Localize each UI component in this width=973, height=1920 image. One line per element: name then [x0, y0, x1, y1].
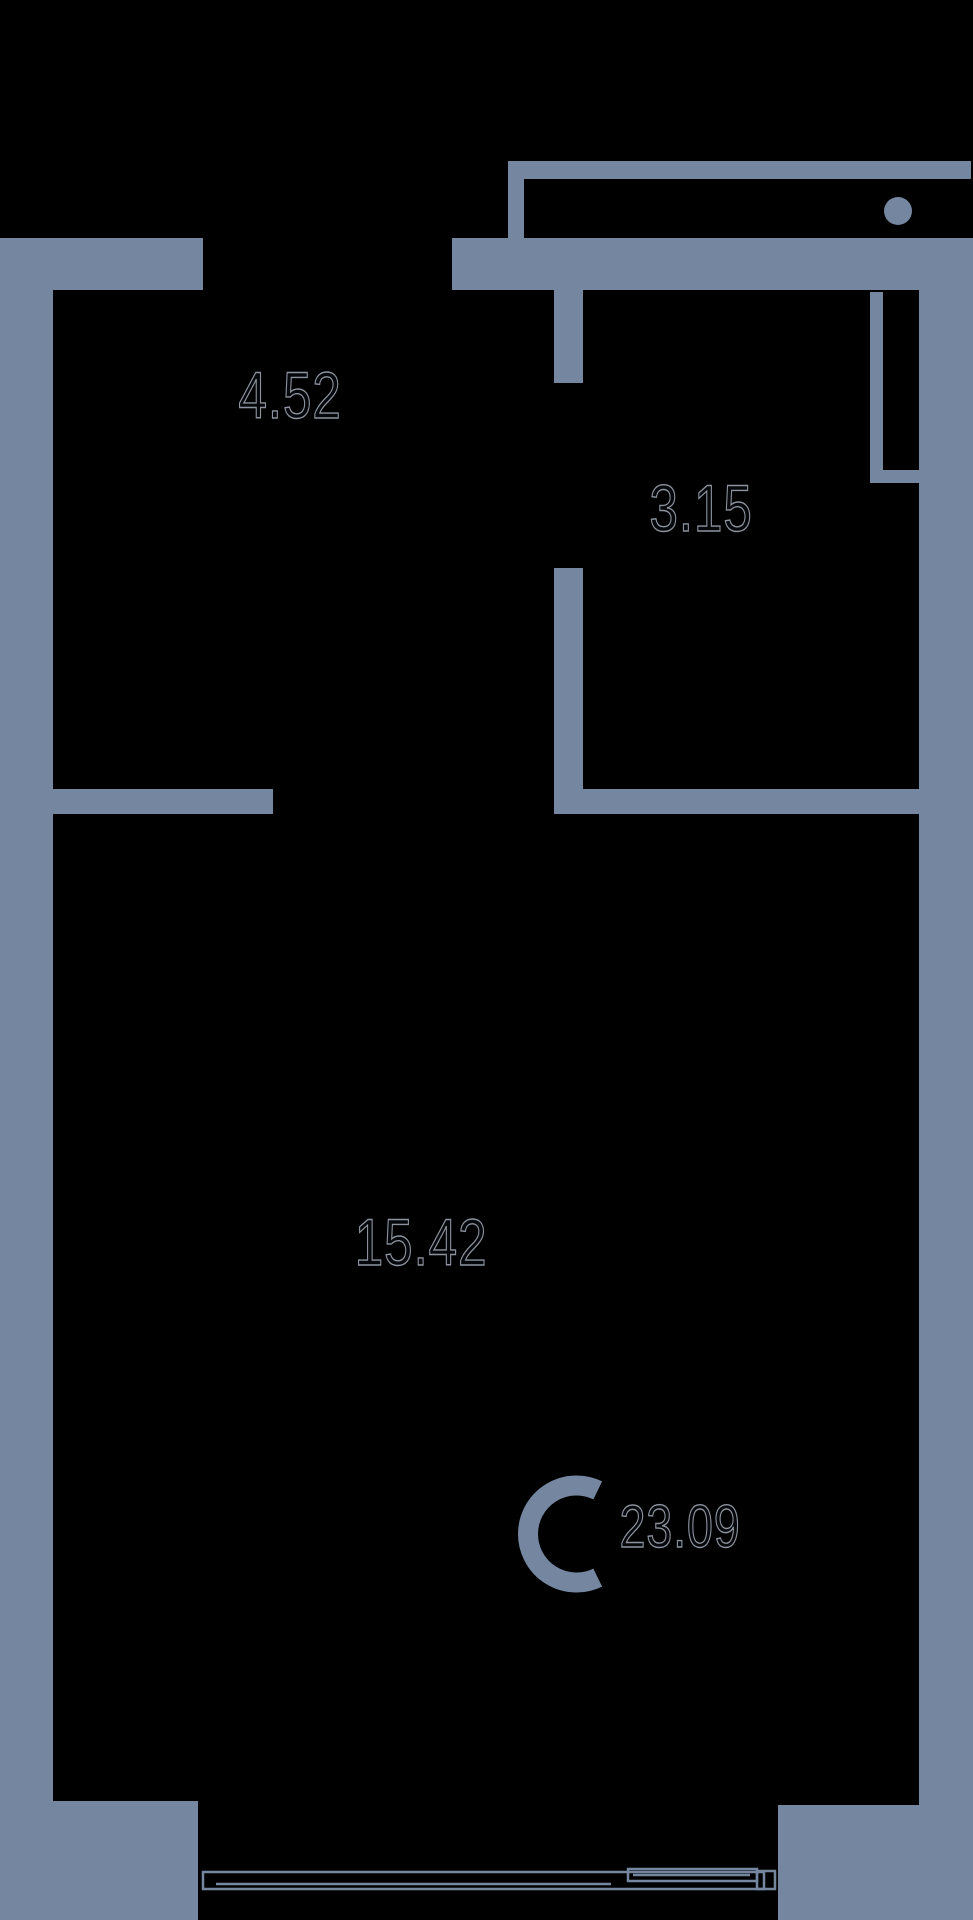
bottom-window-group [203, 1869, 775, 1889]
mid-wall-left-segment [53, 789, 273, 814]
room-area-living: 15.42 [355, 1209, 488, 1275]
bathroom-wall-lower [554, 568, 583, 814]
left-outer-wall [0, 238, 53, 1801]
vent-shaft-bottom-wall [870, 470, 922, 483]
bottom-right-wall-block [778, 1805, 973, 1920]
hall-top-wall [452, 238, 973, 290]
entry-wall-left-stub [0, 238, 203, 290]
room-area-bathroom: 3.15 [649, 475, 752, 541]
vent-shaft-left-wall [870, 292, 883, 470]
bottom-left-wall-block [0, 1801, 198, 1920]
mid-wall-right-segment [554, 789, 919, 814]
vestibule-left-stub [508, 161, 524, 238]
bathroom-wall-upper [554, 290, 583, 383]
door-knob-icon [884, 197, 912, 225]
floor-plan-drawing [0, 0, 973, 1920]
compass-north-letter-icon [528, 1486, 598, 1583]
right-outer-wall [919, 238, 973, 1805]
window-end-cap [757, 1871, 775, 1889]
walls-group [0, 161, 973, 1920]
vestibule-top-wall [508, 161, 971, 179]
floor-plan: 4.523.1515.42 23.09 [0, 0, 973, 1920]
total-area: 23.09 [619, 1497, 740, 1557]
room-area-hallway: 4.52 [238, 362, 341, 428]
